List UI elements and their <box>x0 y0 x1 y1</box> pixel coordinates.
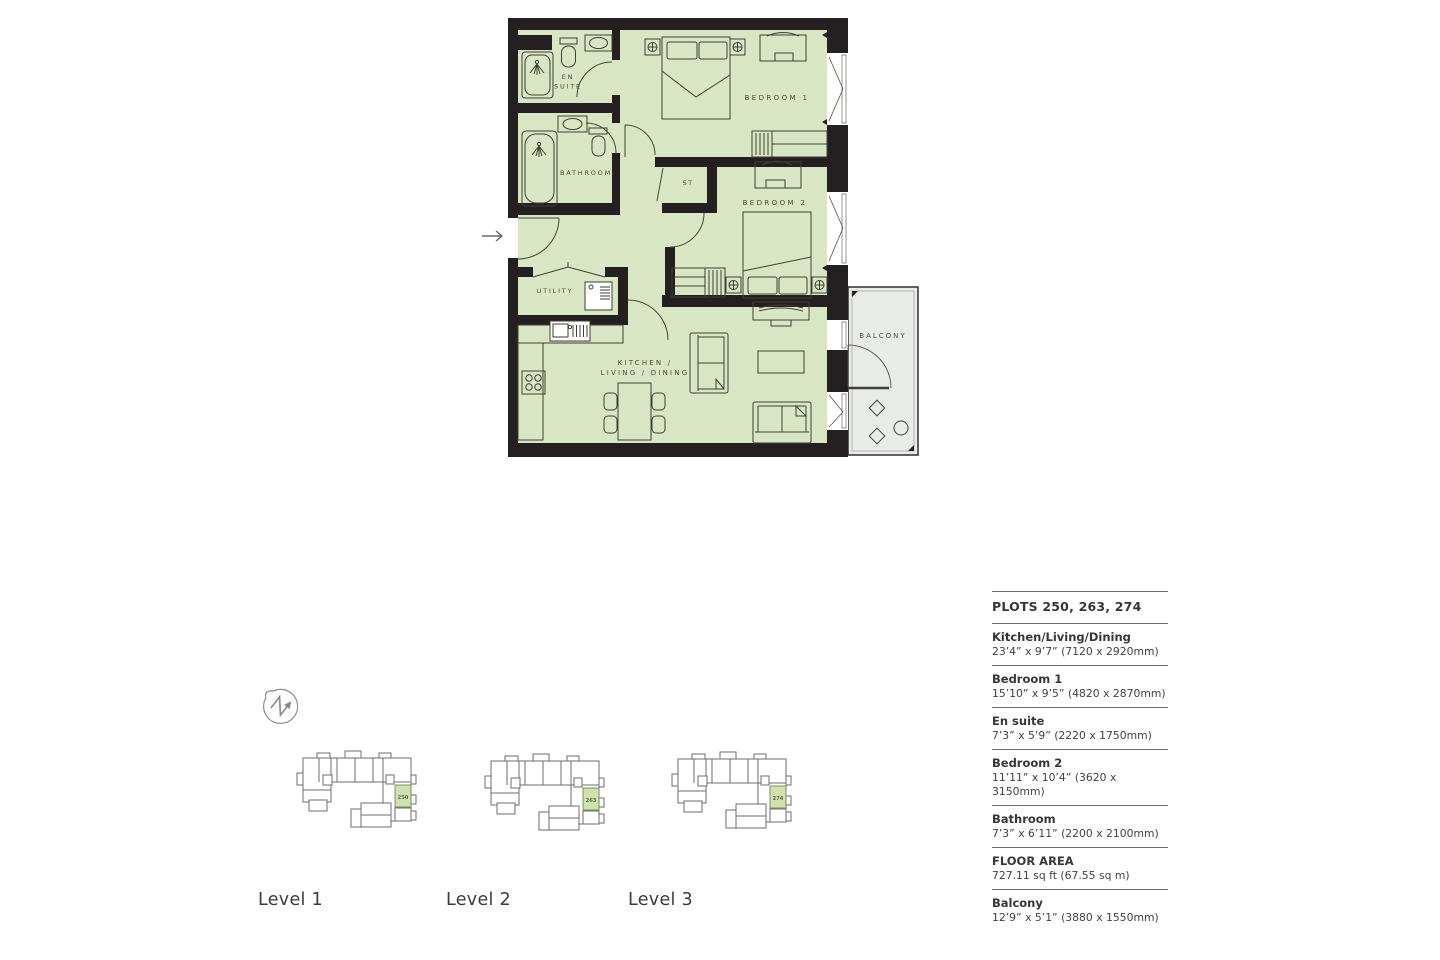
level-3-plot-number: 274 <box>773 796 784 802</box>
plots-title: PLOTS 250, 263, 274 <box>992 591 1168 624</box>
apartment-floorplan: BALCONY <box>505 15 925 460</box>
kitchen-label-line1: KITCHEN / <box>618 359 673 367</box>
level-2-keyplan: 263 <box>481 748 611 843</box>
spec-dims: 7’3” x 5’9” (2220 x 1750mm) <box>992 729 1168 743</box>
north-arrow-icon <box>258 684 304 730</box>
spec-dims: 7’3” x 6’11” (2200 x 2100mm) <box>992 827 1168 841</box>
spec-panel: PLOTS 250, 263, 274 Kitchen/Living/Dinin… <box>992 591 1168 931</box>
balcony-area: BALCONY <box>848 287 918 455</box>
utility-label: UTILITY <box>537 287 574 295</box>
spec-entry-bedroom2: Bedroom 2 11’11” x 10’4” (3620 x 3150mm) <box>992 750 1168 806</box>
spec-dims: 23’4” x 9’7” (7120 x 2920mm) <box>992 645 1168 659</box>
spec-dims: 15’10” x 9’5” (4820 x 2870mm) <box>992 687 1168 701</box>
ensuite-label-line2: SUITE <box>554 83 582 91</box>
level-3-keyplan: 274 <box>668 746 798 841</box>
spec-name: Bedroom 2 <box>992 756 1168 770</box>
spec-name: FLOOR AREA <box>992 854 1168 868</box>
spec-name: Bathroom <box>992 812 1168 826</box>
spec-name: Balcony <box>992 896 1168 910</box>
spec-dims: 12’9” x 5’1” (3880 x 1550mm) <box>992 911 1168 925</box>
spec-entry-bedroom1: Bedroom 1 15’10” x 9’5” (4820 x 2870mm) <box>992 666 1168 708</box>
level-2-label: Level 2 <box>446 890 511 910</box>
spec-entry-bathroom: Bathroom 7’3” x 6’11” (2200 x 2100mm) <box>992 806 1168 848</box>
spec-entry-floor-area: FLOOR AREA 727.11 sq ft (67.55 sq m) <box>992 848 1168 890</box>
storage-label: ST <box>682 179 693 187</box>
bedroom1-label: BEDROOM 1 <box>745 94 810 102</box>
spec-dims: 11’11” x 10’4” (3620 x 3150mm) <box>992 771 1168 799</box>
level-2-plot-number: 263 <box>586 798 597 804</box>
spec-entry-kitchen: Kitchen/Living/Dining 23’4” x 9’7” (7120… <box>992 624 1168 666</box>
spec-dims: 727.11 sq ft (67.55 sq m) <box>992 869 1168 883</box>
bathroom-label: BATHROOM <box>560 169 612 177</box>
entry-arrow-icon <box>481 228 507 244</box>
level-1-keyplan: 250 <box>293 745 423 840</box>
kitchen-label-line2: LIVING / DINING <box>601 369 690 377</box>
spec-name: Kitchen/Living/Dining <box>992 630 1168 644</box>
ensuite-label-line1: EN <box>562 73 575 81</box>
level-3-label: Level 3 <box>628 890 693 910</box>
spec-entry-balcony: Balcony 12’9” x 5’1” (3880 x 1550mm) <box>992 890 1168 931</box>
spec-name: Bedroom 1 <box>992 672 1168 686</box>
spec-name: En suite <box>992 714 1168 728</box>
floorplan-page: BALCONY <box>0 0 1440 960</box>
balcony-label: BALCONY <box>859 332 906 340</box>
bedroom2-label: BEDROOM 2 <box>743 199 808 207</box>
spec-entry-ensuite: En suite 7’3” x 5’9” (2220 x 1750mm) <box>992 708 1168 750</box>
level-1-plot-number: 250 <box>398 795 409 801</box>
level-1-label: Level 1 <box>258 890 323 910</box>
